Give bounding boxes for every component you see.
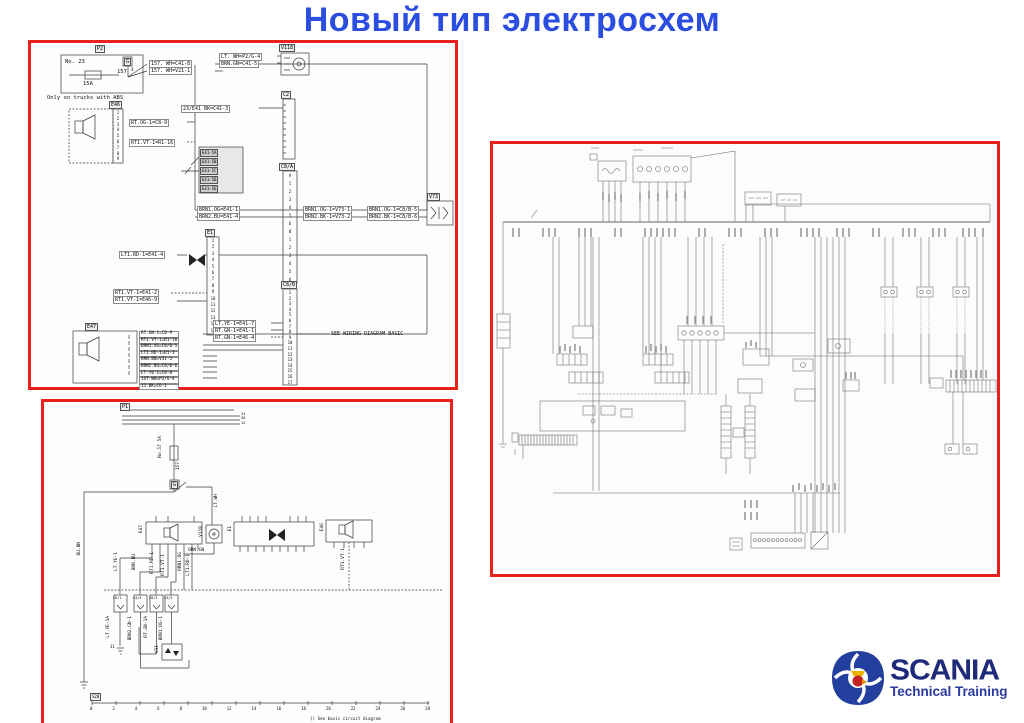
wire-label: BRN1.OG-1 <box>159 616 164 640</box>
wire-label: BRN2.GN-1 <box>128 616 133 640</box>
page-title: Новый тип электросхем <box>0 0 1024 40</box>
see-wiring-note: SEE WIRING DIAGRAM BASIC <box>331 331 403 337</box>
pin-column: A123456B123456 <box>283 172 297 284</box>
wire-label: BRN2.BU=E41-4 <box>197 213 240 221</box>
diagram-3-wires <box>493 144 997 574</box>
connector-tag: C2 <box>281 91 291 99</box>
wire-label: RT.GN-1=E46-4 <box>213 334 256 342</box>
wire-label: RT1.VT-1 <box>161 554 166 576</box>
connector-tag: C4/5 <box>164 596 172 600</box>
component-tag: V118 <box>279 44 295 52</box>
diagram-right <box>490 141 1000 577</box>
wire-label: RT1.VT-1=E46-9 <box>113 296 159 304</box>
footnote: () See basic circuit diagram <box>310 716 381 721</box>
wire-label: RT.OG-1=C8-9 <box>129 119 169 127</box>
component-tag: V31 <box>155 645 160 653</box>
component-tag: V118 <box>199 526 204 537</box>
component-tag: E46 <box>320 523 325 531</box>
wire-label: 157. WH=V21-1 <box>149 67 192 75</box>
pin-column: 1234567891011121314151617 <box>283 290 297 385</box>
connector-tag: C4/5 <box>133 596 141 600</box>
fuse-circuit: 157 <box>117 69 127 75</box>
wire-label: BRN.GN=C41-5 <box>219 60 259 68</box>
wire-label: BRN.BU <box>132 554 137 570</box>
wire-label: ORN1.OG <box>178 552 183 571</box>
scania-logo: SCANIA Technical Training <box>830 646 1024 710</box>
connector-tag: C8/B <box>281 281 297 289</box>
connector-tag: E1 <box>205 229 215 237</box>
connector-g: G <box>124 58 131 66</box>
scania-subtitle: Technical Training <box>890 684 1008 699</box>
component-tag: E1 <box>228 526 233 531</box>
wire-label: RT1.VT-1 <box>341 548 346 570</box>
fuse-label: No.17 5A <box>158 436 163 458</box>
connector-tag: C8/2 <box>149 596 157 600</box>
slide: Новый тип электросхем <box>0 0 1024 723</box>
wire-label: RT1.RD-1 <box>150 552 155 574</box>
wire-label: 157 <box>176 462 181 470</box>
wire-label: LT.YE-1 <box>114 552 119 571</box>
fuse-number: No. 23 <box>65 59 85 65</box>
connector-tag: C8/A <box>279 163 295 171</box>
component-tag: P1 <box>120 403 130 411</box>
scania-badge-icon <box>830 649 886 707</box>
wire-label: ORN.GN <box>188 548 204 553</box>
wire-label: LT1.RD-1=E41-4 <box>119 251 165 259</box>
wire-label: 23/E41 BK=C41-3 <box>181 105 230 113</box>
wire-label: RT.GN-1A <box>144 616 149 638</box>
wire-label: LT1.RD-1 <box>186 554 191 576</box>
ruler-tag: S20 <box>90 693 101 701</box>
component-tag: P2 <box>95 45 105 53</box>
wire-label: LT.WH <box>214 494 219 508</box>
diagram-bottom-left: P1 315815 No.17 5A 157 G LT.WH BU.BN E47… <box>41 399 453 723</box>
connector-tag: E46 <box>109 101 122 109</box>
fuse-rating: 15A <box>83 81 93 87</box>
component-tag: V73 <box>427 193 440 201</box>
component-tag: E47 <box>139 525 144 533</box>
ruler-scale: 0246810121416182022242628 <box>90 706 430 711</box>
ground-terminal: 31 <box>110 644 115 649</box>
wire-label-list: RT.GN-1=C8-9RT1.VT-1=R1-16BRN1.OG=C8/B-5… <box>139 331 179 390</box>
pin-number: 4 <box>131 68 134 73</box>
connector-tag: E47 <box>85 323 98 331</box>
wire-label: BRN2.BK-1=V73-2 <box>303 213 352 221</box>
connector-tag: C8/1 <box>113 596 121 600</box>
wire-label: LT.YE-1A <box>106 616 111 638</box>
diagram-2-wires <box>44 402 444 723</box>
wire-label: BRN2.BK-1=C8/B-6 <box>367 213 419 221</box>
pin-column: 123456789 <box>113 110 123 162</box>
terminal-numbers: 315815 <box>241 412 251 425</box>
wire-label: BU.BN <box>77 542 82 556</box>
wire-label: RT1.VT-1=R1-16 <box>129 139 175 147</box>
scania-wordmark: SCANIA <box>890 658 1008 685</box>
connector-g: G <box>171 481 178 489</box>
legend-grid: E41-5AE41-5BE41-5CE41-5DE41-5E <box>200 149 218 194</box>
diagram-top-left: P2 No. 23 157 15A G 4 Only on trucks wit… <box>28 40 458 390</box>
